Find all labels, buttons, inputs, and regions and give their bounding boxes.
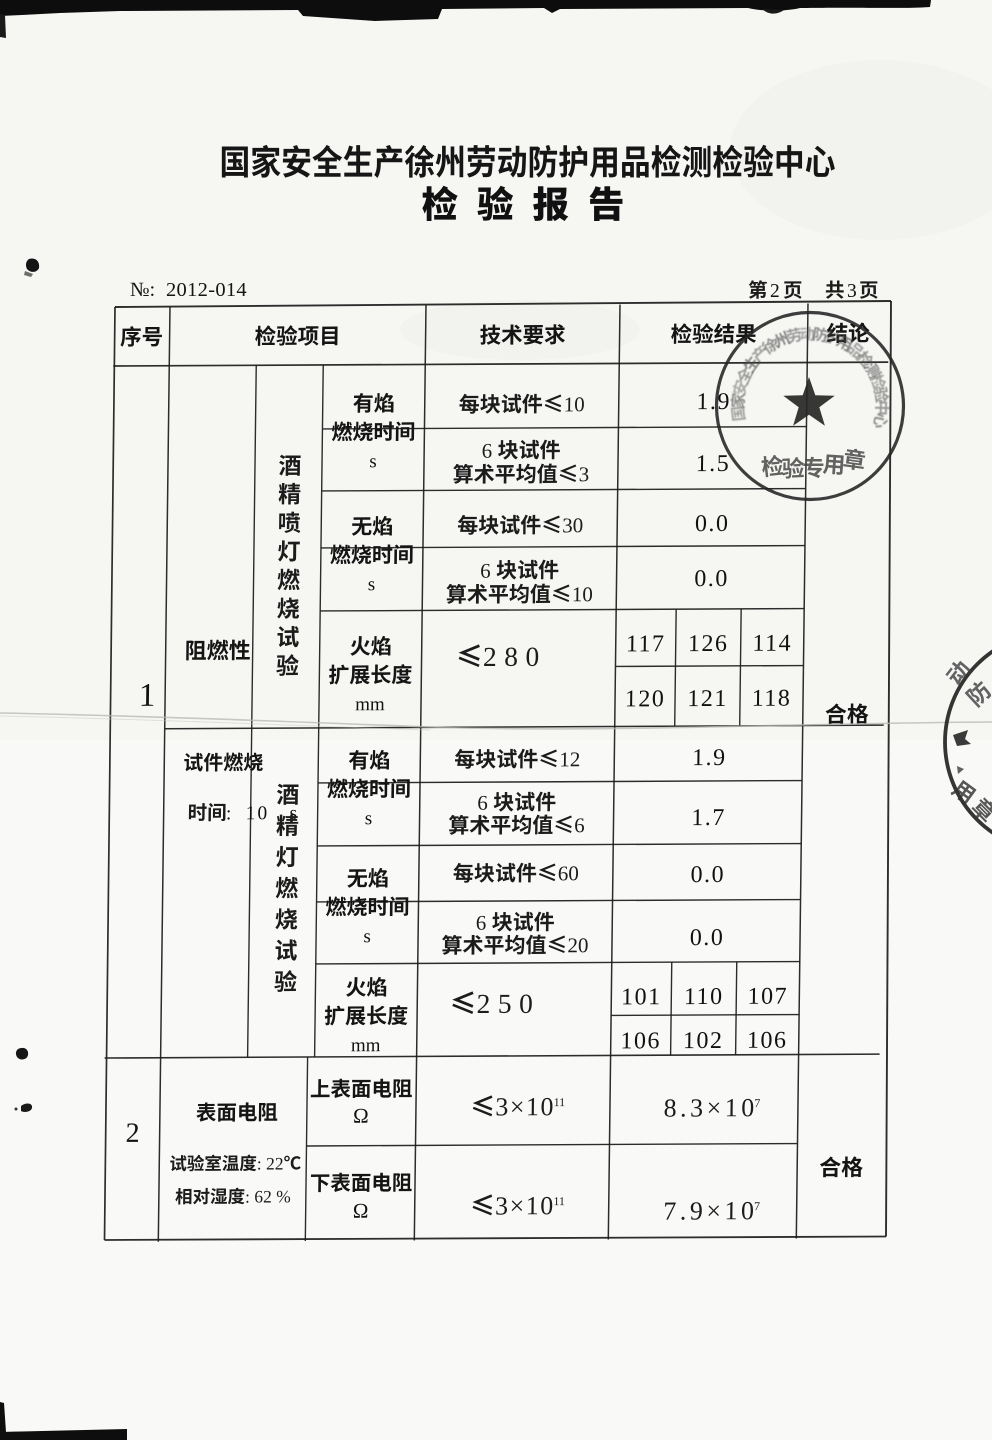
svg-text:6: 6	[480, 559, 491, 583]
svg-text:106: 106	[620, 1028, 661, 1054]
svg-text:: 62 %: : 62 %	[245, 1186, 291, 1206]
svg-text:11: 11	[553, 1194, 565, 1208]
svg-text:1.9: 1.9	[692, 745, 727, 771]
svg-text:121: 121	[687, 686, 728, 712]
svg-text:0.0: 0.0	[694, 566, 729, 592]
svg-text:20: 20	[567, 933, 588, 957]
svg-text:2: 2	[125, 1118, 139, 1149]
svg-text:1: 1	[139, 678, 156, 714]
svg-text:0.0: 0.0	[695, 511, 730, 537]
svg-text::: :	[226, 803, 232, 824]
svg-text:30: 30	[562, 513, 583, 537]
svg-text:120: 120	[625, 686, 666, 712]
svg-text:1.7: 1.7	[691, 805, 726, 831]
svg-text:2: 2	[770, 281, 780, 302]
svg-text:117: 117	[626, 631, 666, 657]
svg-text:280: 280	[483, 641, 547, 672]
svg-text:3×10: 3×10	[495, 1092, 555, 1121]
svg-text:s: s	[368, 574, 376, 595]
svg-text:Ω: Ω	[353, 1199, 369, 1223]
svg-text:6: 6	[482, 439, 493, 463]
svg-text:s: s	[365, 808, 373, 829]
svg-text:102: 102	[683, 1028, 724, 1054]
svg-text:7: 7	[754, 1199, 760, 1213]
svg-text:10: 10	[572, 582, 593, 606]
svg-text:0.0: 0.0	[690, 925, 725, 951]
svg-text:3: 3	[579, 462, 590, 486]
svg-text:118: 118	[752, 686, 792, 712]
svg-text:12: 12	[559, 747, 580, 771]
svg-text:s: s	[369, 451, 377, 472]
svg-text:8.3×10: 8.3×10	[663, 1093, 758, 1122]
svg-text:2012-014: 2012-014	[166, 279, 247, 301]
svg-text:7.9×10: 7.9×10	[663, 1196, 758, 1225]
svg-text:Ω: Ω	[353, 1104, 369, 1128]
svg-text:mm: mm	[355, 694, 385, 715]
svg-text:6: 6	[476, 911, 487, 935]
svg-text:s: s	[363, 926, 371, 947]
svg-text:mm: mm	[351, 1035, 381, 1056]
svg-text:107: 107	[747, 984, 788, 1010]
svg-text:110: 110	[684, 984, 724, 1010]
svg-text:250: 250	[476, 988, 540, 1019]
svg-text:3: 3	[847, 281, 857, 302]
svg-text:1.9: 1.9	[696, 389, 731, 415]
svg-text:101: 101	[621, 984, 662, 1010]
svg-text:10: 10	[564, 392, 585, 416]
svg-text:: 22: : 22	[257, 1153, 284, 1173]
svg-text:60: 60	[558, 861, 579, 885]
svg-text:1.5: 1.5	[696, 451, 731, 477]
svg-text:6: 6	[477, 791, 488, 815]
svg-text:6: 6	[574, 813, 585, 837]
svg-text:7: 7	[754, 1096, 760, 1110]
svg-text:3×10: 3×10	[495, 1191, 555, 1220]
svg-text:126: 126	[688, 631, 729, 657]
svg-text:0.0: 0.0	[690, 862, 725, 888]
svg-text:11: 11	[554, 1095, 566, 1109]
svg-text:114: 114	[752, 631, 792, 657]
svg-text:№:: №:	[130, 279, 155, 301]
svg-text:10: 10	[246, 803, 270, 824]
svg-text:106: 106	[747, 1028, 788, 1054]
